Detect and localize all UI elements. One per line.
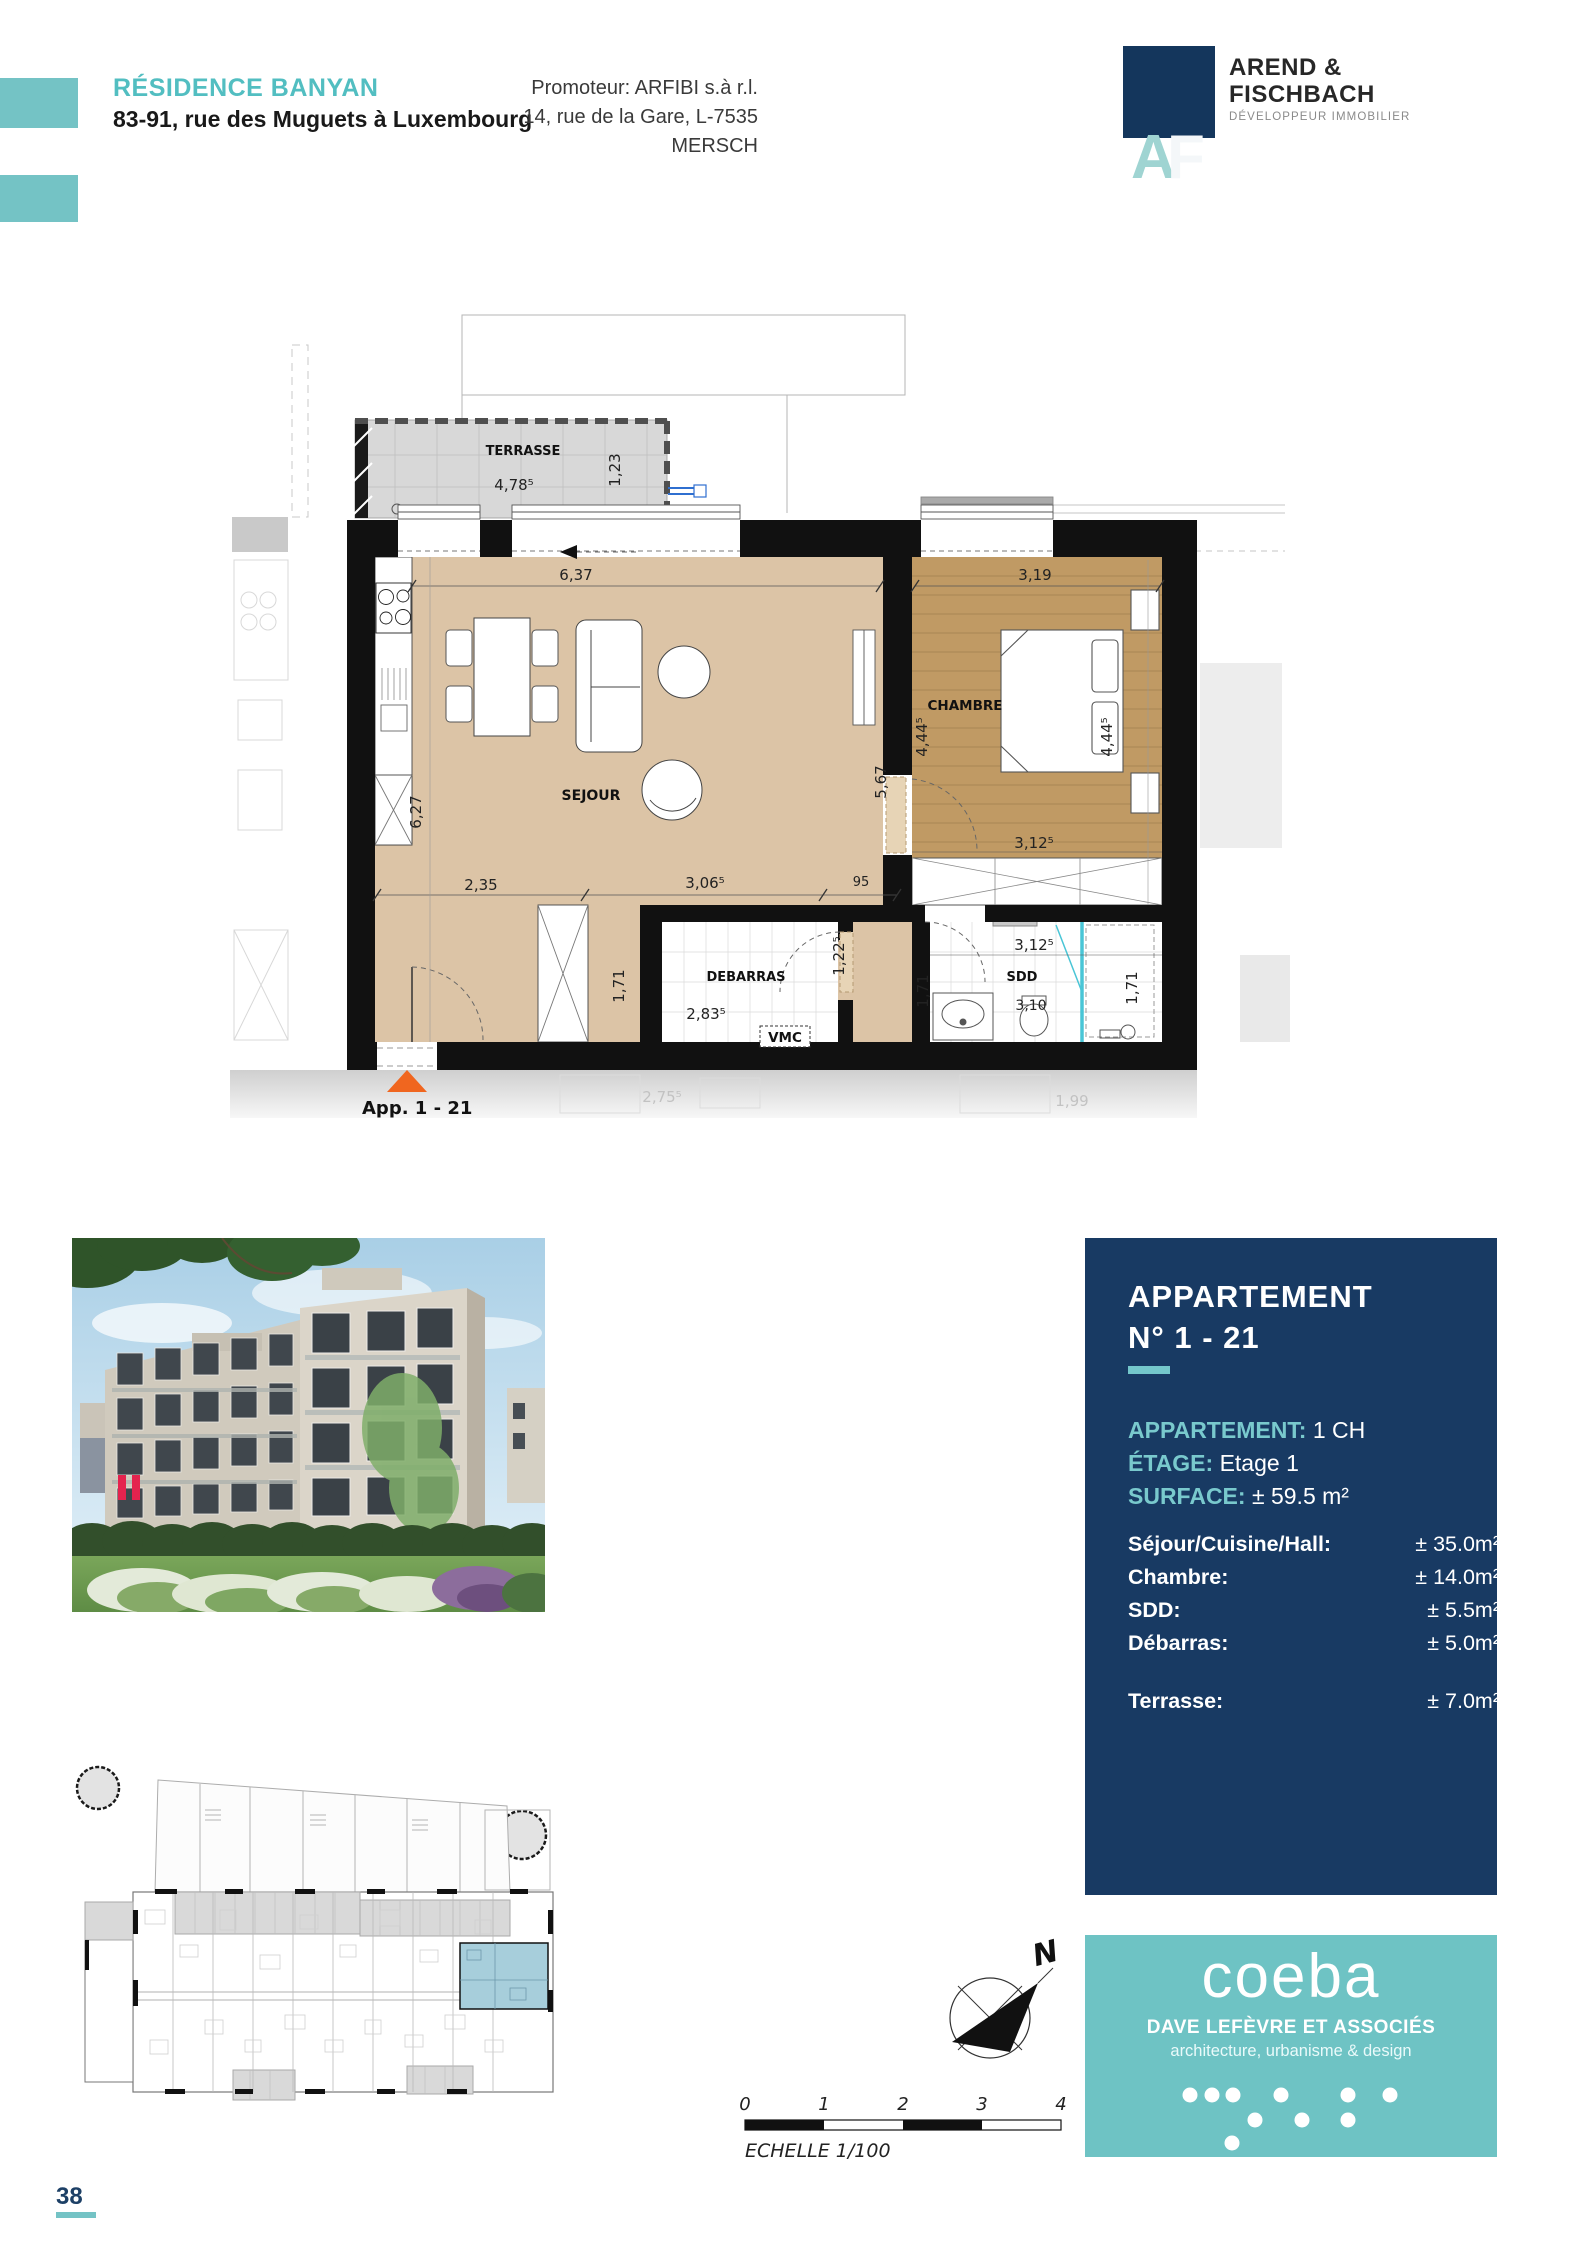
- promoter-block: Promoteur: ARFIBI s.à r.l. 14, rue de la…: [440, 74, 758, 161]
- spec-etage-value: Etage 1: [1220, 1450, 1299, 1476]
- accent-square-bottom: [0, 175, 78, 222]
- entrance-label: App. 1 - 21: [362, 1098, 472, 1119]
- apartment-info-panel: APPARTEMENT N° 1 - 21 APPARTEMENT: 1 CH …: [1085, 1238, 1497, 1895]
- chambre-label: CHAMBRE: [928, 698, 1003, 714]
- page-number-underline: [56, 2212, 96, 2218]
- spec-surface-value: ± 59.5 m²: [1252, 1483, 1349, 1509]
- dim-chambre-width: 3,19: [1018, 566, 1051, 584]
- floor-site-plan: [55, 1740, 555, 2170]
- spec-etage-label: ÉTAGE:: [1128, 1450, 1213, 1476]
- af-letter-f: F: [1167, 122, 1205, 193]
- page-number: 38: [56, 2183, 83, 2211]
- dim-sejour-width: 6,37: [559, 566, 592, 584]
- promoter-line2: 14, rue de la Gare, L-7535 MERSCH: [440, 103, 758, 161]
- af-tagline: DÉVELOPPEUR IMMOBILIER: [1229, 111, 1410, 123]
- area-terrasse-label: Terrasse:: [1128, 1685, 1223, 1718]
- sdd-label: SDD: [1007, 970, 1038, 985]
- area-sejour-label: Séjour/Cuisine/Hall:: [1128, 1528, 1331, 1561]
- area-debarras-label: Débarras:: [1128, 1627, 1228, 1660]
- area-terrasse-value: ± 7.0m²: [1427, 1685, 1500, 1718]
- tree-icon: [77, 1767, 119, 1809]
- dim-chambre-bottom: 3,12⁵: [1014, 834, 1053, 852]
- panel-title-line1: APPARTEMENT: [1128, 1276, 1373, 1317]
- dim-entry-1: 2,35: [464, 876, 497, 894]
- dim-debarras-height: 1,71: [610, 969, 628, 1002]
- coeba-tagline: architecture, urbanisme & design: [1085, 2042, 1497, 2061]
- scale-tick-1: 1: [818, 2094, 829, 2115]
- dim-debarras-door: 1,22⁵: [830, 936, 848, 975]
- spec-apartment-value: 1 CH: [1313, 1417, 1365, 1443]
- area-chambre-value: ± 14.0m²: [1415, 1561, 1500, 1594]
- dim-entry-3: 95: [853, 875, 870, 890]
- coeba-logo-block: coeba DAVE LEFÈVRE ET ASSOCIÉS architect…: [1085, 1935, 1497, 2157]
- area-row-sdd: SDD:± 5.5m²: [1128, 1594, 1500, 1627]
- dim-sejour-right: 5,67: [872, 765, 890, 798]
- area-sdd-value: ± 5.5m²: [1427, 1594, 1500, 1627]
- flower-bushes: [87, 1566, 545, 1612]
- dim-wc: 3,10: [1015, 998, 1046, 1014]
- dim-sejour-height: 6,27: [407, 795, 425, 828]
- dim-entry-2: 3,06⁵: [685, 874, 724, 892]
- brochure-page: RÉSIDENCE BANYAN 83-91, rue des Muguets …: [0, 0, 1575, 2260]
- dim-sdd-width: 3,12⁵: [1014, 936, 1053, 954]
- area-row-chambre: Chambre:± 14.0m²: [1128, 1561, 1500, 1594]
- north-compass: N: [920, 1925, 1080, 2065]
- dim-terrace-depth: 1,23: [606, 453, 624, 486]
- panel-title-line2: N° 1 - 21: [1128, 1317, 1260, 1358]
- dim-faded-a: 2,75⁵: [642, 1088, 681, 1106]
- vmc-label: VMC: [768, 1030, 802, 1046]
- dim-debarras-width: 2,83⁵: [686, 1005, 725, 1023]
- coeba-braille-dots-icon: [1085, 2080, 1497, 2155]
- spec-apartment: APPARTEMENT: 1 CH: [1128, 1414, 1365, 1447]
- arend-fischbach-logo: A F AREND & FISCHBACH DÉVELOPPEUR IMMOBI…: [1123, 46, 1543, 146]
- dim-terrace-width: 4,78⁵: [494, 476, 533, 494]
- scale-bar: 0 1 2 3 4 ECHELLE 1/100: [735, 2082, 1075, 2167]
- closet-strip: [912, 858, 1162, 905]
- debarras-label: DEBARRAS: [706, 970, 785, 985]
- sofa: [576, 620, 642, 752]
- scale-tick-3: 3: [976, 2094, 987, 2115]
- sejour-label: SEJOUR: [562, 788, 621, 804]
- scale-tick-4: 4: [1055, 2094, 1066, 2115]
- af-monogram-icon: A F: [1123, 46, 1215, 138]
- coeba-brand: coeba: [1085, 1945, 1497, 2009]
- building-render-photo: [72, 1238, 545, 1612]
- facade-logo-marker: [118, 1475, 126, 1500]
- scale-tick-0: 0: [739, 2094, 750, 2115]
- armchair: [642, 760, 702, 820]
- area-sejour-value: ± 35.0m²: [1415, 1528, 1500, 1561]
- water-tap-icon: [668, 485, 706, 497]
- spec-etage: ÉTAGE: Etage 1: [1128, 1447, 1365, 1480]
- accent-square-top: [0, 78, 78, 128]
- area-sdd-label: SDD:: [1128, 1594, 1181, 1627]
- project-title: RÉSIDENCE BANYAN: [113, 74, 378, 103]
- af-name-line2: FISCHBACH: [1229, 81, 1410, 108]
- coeba-subtitle: DAVE LEFÈVRE ET ASSOCIÉS: [1085, 2017, 1497, 2039]
- spec-apartment-label: APPARTEMENT:: [1128, 1417, 1306, 1443]
- promoter-line1: Promoteur: ARFIBI s.à r.l.: [440, 74, 758, 103]
- dim-sdd-left: 1,71: [914, 974, 932, 1007]
- area-row-terrasse: Terrasse:± 7.0m²: [1128, 1685, 1500, 1718]
- terrace-label: TERRASSE: [486, 444, 561, 459]
- dim-chambre-left: 4,44⁵: [913, 717, 931, 756]
- tall-cupboard: [538, 905, 588, 1042]
- spec-surface-label: SURFACE:: [1128, 1483, 1246, 1509]
- apartment-floor-plan: VMC TERRASSE 4,78⁵ 1,23: [230, 240, 1290, 1120]
- wardrobe-sejour: [853, 630, 875, 725]
- area-row-debarras: Débarras:± 5.0m²: [1128, 1627, 1500, 1660]
- dim-chambre-right: 4,44⁵: [1098, 717, 1116, 756]
- panel-accent-bar: [1128, 1366, 1170, 1374]
- area-debarras-value: ± 5.0m²: [1427, 1627, 1500, 1660]
- scale-caption: ECHELLE 1/100: [745, 2140, 891, 2162]
- terrace: TERRASSE 4,78⁵ 1,23: [352, 420, 706, 518]
- coffee-table: [658, 646, 710, 698]
- north-label: N: [1029, 1934, 1062, 1974]
- scale-tick-2: 2: [897, 2094, 908, 2115]
- dim-sdd-right: 1,71: [1123, 971, 1141, 1004]
- dim-faded-b: 1,99: [1055, 1092, 1088, 1110]
- area-row-sejour: Séjour/Cuisine/Hall:± 35.0m²: [1128, 1528, 1500, 1561]
- area-chambre-label: Chambre:: [1128, 1561, 1228, 1594]
- af-name-line1: AREND &: [1229, 54, 1410, 81]
- spec-surface: SURFACE: ± 59.5 m²: [1128, 1480, 1365, 1513]
- highlighted-unit: [460, 1943, 548, 2009]
